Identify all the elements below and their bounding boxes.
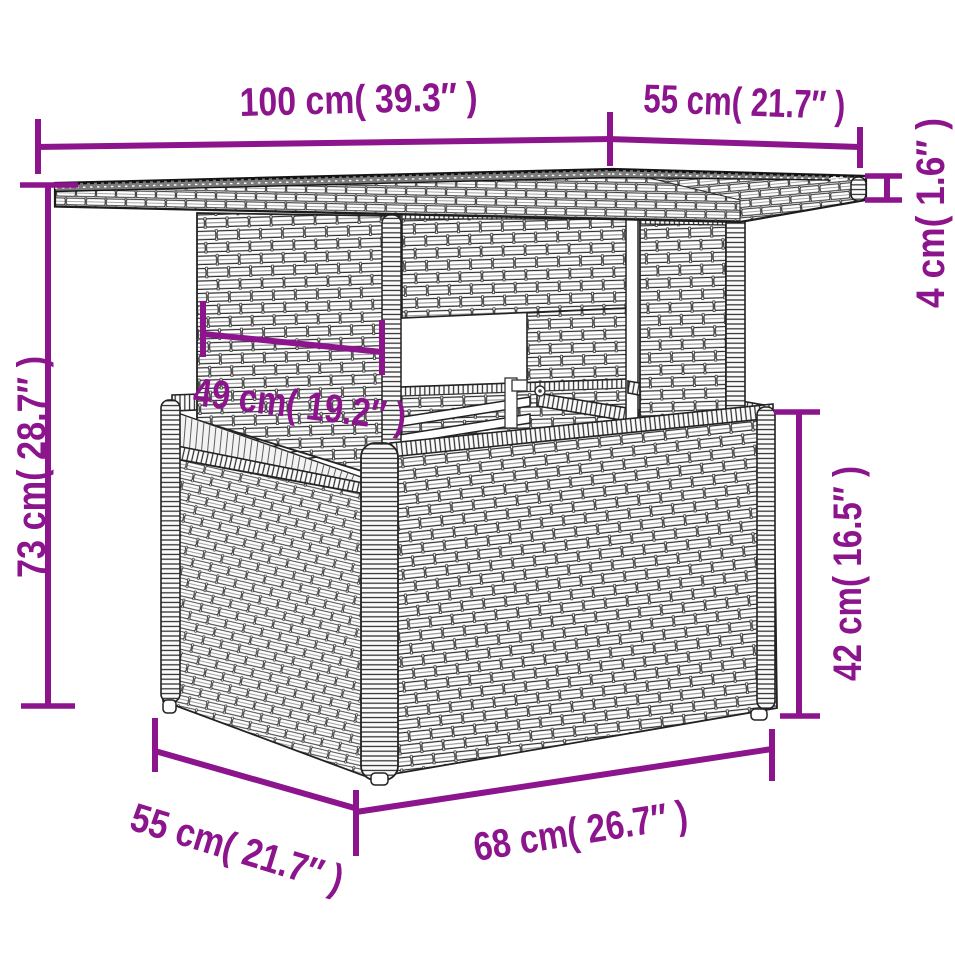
svg-text:100 cm( 39.3″ ): 100 cm( 39.3″ ) [239,75,478,125]
svg-text:73 cm( 28.7″ ): 73 cm( 28.7″ ) [10,356,54,578]
svg-text:55 cm( 21.7″ ): 55 cm( 21.7″ ) [643,77,846,128]
svg-text:4 cm( 1.6″ ): 4 cm( 1.6″ ) [909,118,953,308]
svg-text:42 cm( 16.5″ ): 42 cm( 16.5″ ) [826,466,870,681]
